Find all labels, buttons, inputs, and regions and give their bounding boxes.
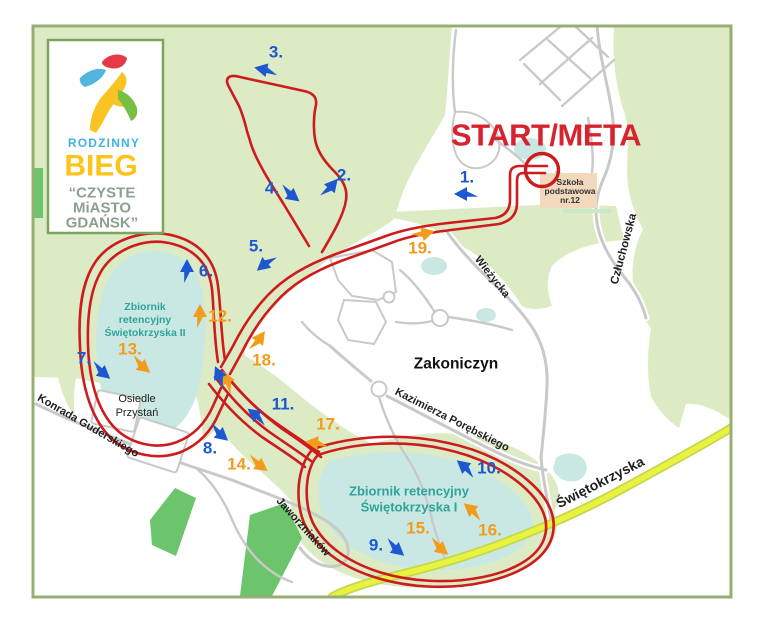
svg-text:Osiedle: Osiedle bbox=[118, 393, 155, 405]
route-map: START/META Szkoła podstawowa nr.12 Zbior… bbox=[0, 0, 768, 628]
logo-line-bieg: BIEG bbox=[64, 150, 137, 183]
map-canvas: START/META Szkoła podstawowa nr.12 Zbior… bbox=[0, 0, 768, 628]
route-marker-9: 9. bbox=[369, 536, 383, 555]
roundabout-1 bbox=[372, 382, 387, 397]
route-marker-4: 4. bbox=[265, 179, 279, 198]
event-logo: RODZINNY BIEG “CZYSTE MiASTO GDAŃSK” bbox=[48, 40, 163, 233]
area-label-zakoniczyn: Zakoniczyn bbox=[414, 356, 498, 373]
start-meta-label: START/META bbox=[451, 118, 641, 153]
route-marker-18: 18. bbox=[252, 351, 276, 370]
route-marker-1: 1. bbox=[460, 168, 474, 187]
svg-text:Zbiornik: Zbiornik bbox=[124, 301, 166, 313]
pond-2 bbox=[476, 308, 496, 322]
route-marker-13: 13. bbox=[118, 340, 142, 359]
route-marker-5: 5. bbox=[249, 237, 263, 256]
svg-text:retencyjny: retencyjny bbox=[119, 314, 172, 326]
route-marker-2: 2. bbox=[337, 166, 351, 185]
svg-text:Świętokrzyska I: Świętokrzyska I bbox=[361, 500, 458, 515]
logo-line-rodzinny: RODZINNY bbox=[68, 136, 140, 150]
pond-1 bbox=[421, 257, 447, 275]
svg-text:Przystań: Przystań bbox=[116, 407, 159, 419]
reservoir-1-label: Zbiornik retencyjny Świętokrzyska I bbox=[349, 484, 470, 515]
route-marker-3: 3. bbox=[269, 43, 283, 62]
route-marker-7: 7. bbox=[77, 349, 91, 368]
logo-line-gdansk: GDAŃSK” bbox=[66, 215, 139, 232]
route-marker-17: 17. bbox=[316, 415, 340, 434]
svg-text:Świętokrzyska II: Świętokrzyska II bbox=[104, 326, 185, 339]
route-marker-6: 6. bbox=[199, 262, 213, 281]
route-marker-8: 8. bbox=[203, 439, 217, 458]
route-marker-14: 14. bbox=[227, 455, 251, 474]
route-marker-16: 16. bbox=[478, 521, 502, 540]
svg-text:nr.12: nr.12 bbox=[560, 195, 580, 205]
route-marker-12: 12. bbox=[208, 307, 232, 326]
svg-text:Zbiornik retencyjny: Zbiornik retencyjny bbox=[349, 484, 470, 499]
route-marker-10: 10. bbox=[477, 459, 501, 478]
route-marker-11: 11. bbox=[272, 395, 295, 414]
route-marker-19: 19. bbox=[408, 239, 432, 258]
school-green-strip bbox=[563, 209, 611, 213]
route-marker-15: 15. bbox=[406, 519, 430, 538]
roundabout-2 bbox=[432, 310, 448, 326]
